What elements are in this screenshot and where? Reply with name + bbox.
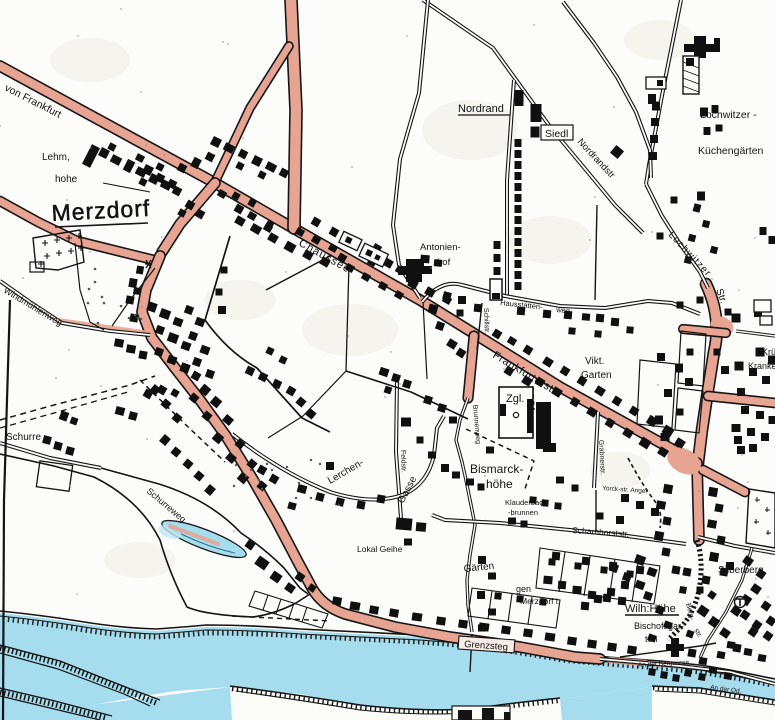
- svg-text:Vikt.: Vikt.: [585, 356, 604, 367]
- svg-text:Zgl.: Zgl.: [506, 393, 524, 405]
- svg-text:Feldstr.: Feldstr.: [399, 450, 407, 473]
- svg-text:Silberberg: Silberberg: [718, 565, 764, 576]
- svg-text:Krü: Krü: [762, 347, 775, 357]
- svg-text:Bischofsgar-: Bischofsgar-: [634, 621, 684, 631]
- svg-text:Lokal Geihe: Lokal Geihe: [357, 544, 403, 554]
- svg-text:gen: gen: [516, 584, 531, 594]
- svg-text:Schillstr.: Schillstr.: [482, 308, 490, 334]
- svg-text:Küchengärten: Küchengärten: [698, 145, 764, 157]
- svg-text:Lochwitzer -: Lochwitzer -: [700, 109, 757, 121]
- svg-text:Schurre: Schurre: [6, 432, 41, 443]
- svg-text:höhe: höhe: [486, 477, 513, 491]
- svg-text:Bismarck-: Bismarck-: [470, 462, 523, 476]
- svg-text:Wilh:Höhe: Wilh:Höhe: [625, 603, 676, 615]
- svg-text:Garten: Garten: [581, 370, 612, 381]
- svg-text:Lehm,: Lehm,: [42, 152, 70, 163]
- svg-text:ten: ten: [645, 634, 658, 644]
- svg-text:Merzdorf i.: Merzdorf i.: [520, 596, 560, 606]
- svg-text:Siedl: Siedl: [545, 128, 568, 140]
- svg-text:Klauderbad-: Klauderbad-: [505, 498, 546, 507]
- svg-text:Kranken: Kranken: [748, 361, 775, 371]
- svg-text:Nordrand: Nordrand: [458, 103, 504, 115]
- svg-text:Merzdorf: Merzdorf: [51, 195, 151, 226]
- svg-text:-brunnen: -brunnen: [508, 508, 538, 517]
- svg-text:hohe: hohe: [55, 174, 78, 185]
- svg-text:hof: hof: [437, 257, 451, 268]
- svg-text:weg: weg: [555, 305, 571, 315]
- svg-text:Antonien-: Antonien-: [420, 242, 461, 253]
